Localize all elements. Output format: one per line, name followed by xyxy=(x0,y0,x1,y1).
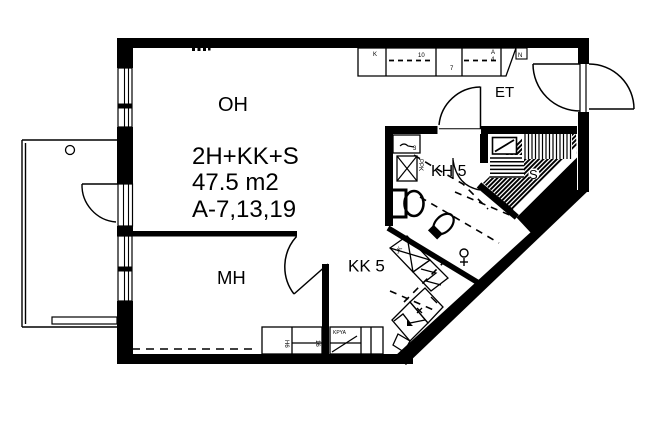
svg-text:N: N xyxy=(518,53,522,59)
svg-text:S: S xyxy=(529,167,538,182)
svg-text:A: A xyxy=(491,50,495,56)
svg-text:MH: MH xyxy=(217,267,246,288)
svg-text:16: 16 xyxy=(314,340,320,347)
svg-text:ET: ET xyxy=(495,84,514,101)
svg-text:A-7,13,19: A-7,13,19 xyxy=(192,196,296,223)
svg-text:10: 10 xyxy=(418,53,425,59)
svg-text:K: K xyxy=(373,52,377,58)
svg-text:PPK: PPK xyxy=(417,159,423,171)
svg-text:KK 5: KK 5 xyxy=(348,257,385,276)
svg-text:2H+KK+S: 2H+KK+S xyxy=(192,143,299,170)
svg-text:KH 5: KH 5 xyxy=(431,163,467,180)
svg-text:H6: H6 xyxy=(283,340,289,348)
svg-text:KPYA: KPYA xyxy=(333,330,347,336)
svg-text:OH: OH xyxy=(218,94,248,116)
svg-text:47.5 m2: 47.5 m2 xyxy=(192,169,279,196)
